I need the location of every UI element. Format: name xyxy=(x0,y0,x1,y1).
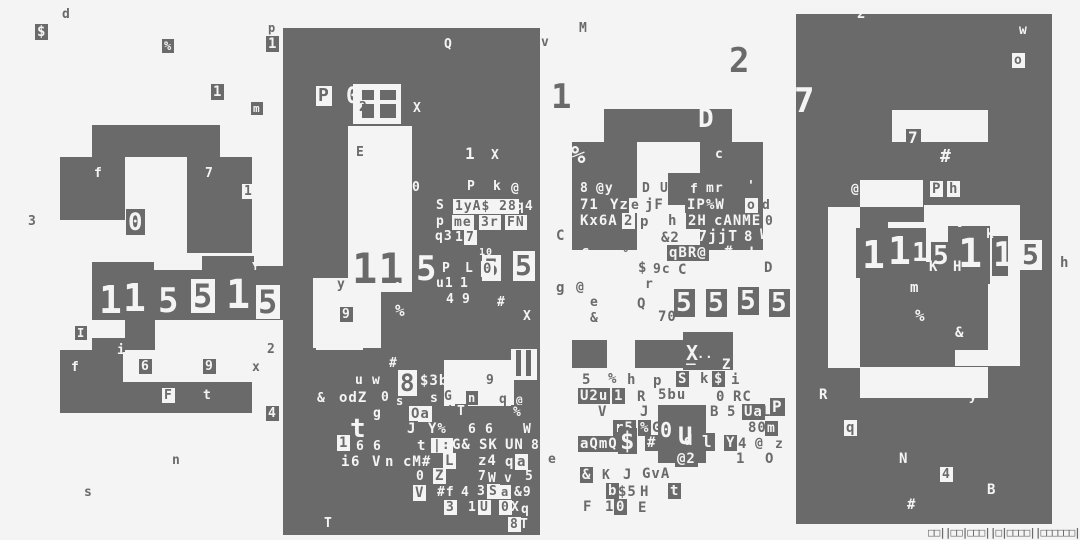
glyph: X xyxy=(491,149,500,162)
glyph: T xyxy=(455,404,468,419)
glyph: # xyxy=(389,357,398,370)
glyph: % xyxy=(620,242,629,255)
glyph: 8 xyxy=(398,370,417,396)
glyph: 7 xyxy=(478,470,487,483)
glyph: f xyxy=(94,167,103,180)
glyph: 2 xyxy=(267,343,276,356)
glyph: E xyxy=(356,146,365,159)
glyph: t xyxy=(668,483,681,499)
block xyxy=(572,340,607,368)
glyph: % xyxy=(395,303,406,319)
glyph: 0 xyxy=(381,391,390,404)
glyph: @ xyxy=(755,437,764,450)
glyph: a xyxy=(515,454,528,470)
glyph: G xyxy=(444,390,453,403)
glyph: L xyxy=(465,262,474,275)
glyph: 0 xyxy=(716,390,725,404)
glyph: f xyxy=(69,360,82,375)
glyph: wb xyxy=(468,406,486,419)
block xyxy=(187,157,252,253)
glyph: h xyxy=(947,181,960,197)
glyph: U xyxy=(495,406,504,419)
glyph: N xyxy=(899,452,908,466)
glyph: mr xyxy=(706,182,724,195)
glyph: E xyxy=(638,501,647,515)
glyph: K xyxy=(929,260,938,274)
glyph: C xyxy=(556,229,565,243)
glyph: J xyxy=(623,468,632,482)
glyph: 5 xyxy=(191,279,215,313)
glyph: q xyxy=(505,455,514,469)
glyph: w xyxy=(372,374,381,387)
glyph: e xyxy=(629,198,642,213)
glyph: 6 xyxy=(468,423,477,436)
white-patch xyxy=(828,350,860,368)
glyph: 2 xyxy=(359,101,368,114)
glyph: 0 xyxy=(660,420,673,440)
glyph: K xyxy=(602,469,611,482)
glyph: P xyxy=(316,86,332,106)
glyph: 1 xyxy=(226,275,251,315)
glyph: 0 xyxy=(126,209,145,235)
glyph: GvA xyxy=(642,467,670,481)
glyph: 1 xyxy=(123,279,147,317)
white-patch xyxy=(860,180,923,207)
glyph: v xyxy=(541,36,550,49)
glyph: C xyxy=(678,263,687,277)
glyph: e xyxy=(548,453,557,466)
glyph: # xyxy=(645,435,658,451)
glyph: # xyxy=(907,498,916,512)
glyph: 2 xyxy=(622,213,635,229)
glyph: 1 xyxy=(993,238,1014,272)
glyph: L xyxy=(443,453,456,469)
glyph: t xyxy=(203,389,212,402)
glyph: @ xyxy=(509,181,522,196)
glyph: 9c xyxy=(653,263,671,276)
glyph: R xyxy=(637,390,646,404)
glyph: q xyxy=(521,503,530,516)
glyph: n xyxy=(385,455,394,469)
glyph: 1 xyxy=(612,388,625,404)
glyph: 0 xyxy=(412,181,421,194)
glyph: 1 xyxy=(242,184,255,199)
glyph: Oa xyxy=(409,406,432,422)
block xyxy=(362,90,374,100)
glyph: 5 xyxy=(674,289,695,317)
glyph: %W xyxy=(706,198,725,212)
block xyxy=(526,350,531,376)
glyph: m xyxy=(251,102,263,115)
glyph: B xyxy=(987,483,996,497)
glyph: # xyxy=(497,296,506,309)
glyph: D xyxy=(698,106,715,132)
glyph: 3r xyxy=(479,215,501,230)
glyph: s xyxy=(396,395,404,407)
glyph: .. xyxy=(697,348,713,360)
glyph: P xyxy=(770,398,785,416)
glyph: g xyxy=(556,281,565,295)
glyph: U xyxy=(478,500,491,515)
glyph: f xyxy=(688,182,701,197)
glyph: s xyxy=(84,486,93,499)
block xyxy=(60,157,125,220)
glyph: Y% xyxy=(428,422,447,436)
glyph: g xyxy=(373,407,382,420)
glyph: 1yA$ 28 xyxy=(453,199,519,214)
glyph: q4 xyxy=(516,200,534,213)
glitch-canvas: d$%p11m3f710Y115515Iif692xFt4nsQvP02XE1X… xyxy=(0,0,1080,540)
glyph: RC xyxy=(733,390,752,404)
glyph: $ xyxy=(471,278,480,292)
glyph: q3 xyxy=(435,230,453,243)
glyph: c xyxy=(715,148,724,161)
glyph: 5 xyxy=(582,373,591,387)
glyph: Y xyxy=(724,435,737,451)
glyph: z4 xyxy=(476,453,499,469)
glyph: ' xyxy=(747,180,756,193)
glyph: U xyxy=(660,182,669,195)
glyph: V xyxy=(598,405,607,419)
glyph: @2 xyxy=(675,451,698,467)
glyph: 7jjT xyxy=(698,229,738,244)
glyph: 3 xyxy=(444,500,457,515)
glyph: FN xyxy=(505,215,527,230)
glyph: 7 xyxy=(955,210,969,232)
glyph: & xyxy=(317,392,326,405)
glyph: 1 xyxy=(862,236,886,274)
block xyxy=(516,350,521,376)
glyph: F xyxy=(162,388,175,403)
glyph: L xyxy=(749,246,758,260)
glyph: @y xyxy=(596,182,614,195)
glyph: 71 xyxy=(580,198,599,212)
glyph: 4 xyxy=(446,293,455,306)
glyph: S xyxy=(487,484,500,499)
glyph: 6 xyxy=(485,423,494,436)
glyph: % xyxy=(608,372,617,386)
glyph: 5bu xyxy=(658,388,686,402)
glyph: D xyxy=(642,182,651,195)
glyph: m xyxy=(910,281,919,295)
glyph: 8 xyxy=(508,517,521,532)
glyph: _ xyxy=(686,348,697,364)
glyph: @ xyxy=(851,183,860,196)
glyph: X xyxy=(511,501,520,514)
glyph: S xyxy=(436,199,445,212)
glyph: W xyxy=(523,423,532,436)
glyph: J xyxy=(640,405,649,419)
block xyxy=(125,317,155,350)
glyph: n xyxy=(172,454,181,467)
glyph: G& xyxy=(452,438,471,452)
glyph: # xyxy=(940,148,952,166)
glyph: 0 xyxy=(416,470,425,483)
block xyxy=(892,287,955,367)
glyph: 4 xyxy=(738,437,747,451)
glyph: Y xyxy=(252,261,260,272)
glyph: X xyxy=(413,102,422,115)
glyph: aQmQ xyxy=(578,436,620,452)
glyph: r xyxy=(645,278,654,291)
glyph: S xyxy=(676,371,689,387)
glyph: n xyxy=(466,391,478,405)
white-patch xyxy=(316,340,363,350)
glyph: T xyxy=(520,518,529,531)
glyph: 8 xyxy=(580,182,589,195)
glyph: cANME xyxy=(714,214,761,228)
glyph: % xyxy=(162,39,174,53)
glyph: I xyxy=(75,326,87,340)
glyph: me xyxy=(452,215,474,230)
glyph: D xyxy=(764,261,773,275)
glyph: B xyxy=(710,405,719,419)
glyph: k xyxy=(493,180,502,193)
glyph: 5 xyxy=(158,284,179,318)
block xyxy=(380,90,396,100)
glyph: V xyxy=(413,485,426,501)
glyph: 9 xyxy=(203,359,216,374)
glyph: 0 xyxy=(614,499,627,515)
glyph: 5 xyxy=(769,289,790,317)
glyph: 5 xyxy=(738,287,759,315)
glyph: v xyxy=(504,472,513,485)
glyph: H xyxy=(640,485,649,499)
glyph: Yz xyxy=(610,198,629,212)
glyph: m xyxy=(765,421,778,436)
glyph: 1 xyxy=(465,146,476,162)
glyph: 2 xyxy=(857,7,866,21)
glyph: X xyxy=(521,309,534,324)
glyph: |: xyxy=(431,438,453,453)
glyph: 7 xyxy=(906,129,921,147)
glyph: 6 xyxy=(349,454,362,470)
glyph: s xyxy=(428,391,441,406)
glyph: t xyxy=(417,439,426,453)
glyph: & xyxy=(580,467,593,483)
glyph: 1 xyxy=(99,281,123,319)
glyph: V xyxy=(370,454,383,470)
glyph: p xyxy=(436,215,445,228)
glyph: 4 xyxy=(266,406,279,421)
glyph: 5 xyxy=(706,289,727,317)
glyph: 5 xyxy=(727,405,736,419)
glyph: h xyxy=(668,214,677,228)
glyph: 7 xyxy=(205,167,214,180)
glyph: WZ xyxy=(760,228,779,242)
glyph: 2 xyxy=(729,44,750,78)
glyph: 9 xyxy=(340,307,353,322)
glyph: q xyxy=(844,420,857,436)
glyph: 5 xyxy=(256,285,280,319)
glyph: 5 xyxy=(1020,240,1042,270)
glyph: d xyxy=(762,199,771,212)
glyph: x xyxy=(252,361,261,374)
glyph: % xyxy=(571,143,586,167)
glyph: h xyxy=(1060,256,1069,270)
glyph: 3 xyxy=(531,394,539,405)
glyph: $ xyxy=(35,24,48,40)
glyph: P xyxy=(930,181,943,197)
glyph: H xyxy=(953,260,962,274)
glyph: 3 xyxy=(28,215,37,228)
glyph: 8 xyxy=(531,439,540,452)
glyph: B xyxy=(698,450,707,464)
glyph: y xyxy=(969,390,978,403)
glyph: 3 xyxy=(477,485,486,498)
glyph: u1 xyxy=(436,277,454,290)
glyph: d xyxy=(62,8,71,21)
glyph: i xyxy=(446,406,455,419)
glyph: # xyxy=(724,245,733,259)
glyph: Q xyxy=(444,38,453,51)
glyph: @ xyxy=(574,280,587,295)
glyph: Z xyxy=(722,358,731,372)
glyph: w xyxy=(1019,24,1028,37)
barcode-strip: □□||□□|□□□||□|□□□□||□□□□□□||□||□ xyxy=(928,526,1080,539)
glyph: odZ xyxy=(339,391,367,405)
glyph: 5 xyxy=(513,251,535,281)
glyph: &9 xyxy=(514,486,532,499)
glyph: 5 xyxy=(525,470,534,483)
glyph: p xyxy=(640,215,649,229)
glyph: 1 xyxy=(912,240,929,266)
glyph: Q xyxy=(637,297,646,311)
glyph: $3b xyxy=(420,374,448,388)
glyph: 6 xyxy=(139,359,152,374)
glyph: UN xyxy=(505,438,524,452)
glyph: 1 xyxy=(266,36,279,52)
glyph: Kx6A xyxy=(580,214,618,228)
glyph: k xyxy=(700,372,709,386)
glyph: P xyxy=(467,180,476,193)
glyph: $5 xyxy=(618,485,637,499)
glyph: R xyxy=(819,388,828,402)
glyph: 6 xyxy=(356,440,365,453)
glyph: 0 xyxy=(481,261,494,277)
glyph: p xyxy=(653,374,662,388)
glyph: 1 xyxy=(337,435,350,451)
block xyxy=(380,104,396,118)
glyph: h xyxy=(627,373,636,387)
glyph: IP xyxy=(685,197,708,213)
glyph: 1 xyxy=(211,84,224,100)
glyph: % xyxy=(395,281,404,295)
glyph: 7 xyxy=(794,84,815,118)
glyph: 9 xyxy=(460,292,473,307)
glyph: qBR@ xyxy=(667,245,709,261)
glyph: 6 xyxy=(373,440,382,453)
glyph: 1 xyxy=(736,452,745,466)
glyph: F xyxy=(583,500,592,514)
glyph: 9 xyxy=(486,374,495,387)
glyph: $ xyxy=(712,371,725,387)
glyph: SK xyxy=(477,437,500,453)
glyph: J xyxy=(405,421,418,437)
glyph: cM# xyxy=(403,455,431,469)
glyph: 4 xyxy=(940,467,953,482)
glyph: 1 xyxy=(466,500,479,515)
glyph: & xyxy=(955,326,964,340)
glyph: $ xyxy=(638,261,647,275)
block xyxy=(92,125,220,157)
glyph: 1 xyxy=(551,80,572,114)
glyph: O xyxy=(765,452,774,466)
glyph: % xyxy=(638,420,651,436)
glyph: i xyxy=(117,344,126,357)
glyph: jF xyxy=(645,198,664,212)
glyph: &2 xyxy=(661,231,680,245)
glyph: a xyxy=(499,485,511,499)
glyph: o xyxy=(745,198,758,213)
glyph: 4 xyxy=(461,486,470,499)
glyph: e xyxy=(588,295,601,310)
glyph: u xyxy=(355,374,364,387)
white-patch xyxy=(511,349,537,380)
glyph: V xyxy=(988,337,1002,359)
glyph: P xyxy=(440,261,453,276)
glyph: 0 xyxy=(499,500,512,515)
glyph: 7 xyxy=(464,230,477,245)
glyph: d xyxy=(684,434,693,448)
glyph: % xyxy=(915,308,926,324)
glyph: 8 xyxy=(744,230,753,244)
glyph: $ xyxy=(618,428,637,454)
glyph: U2u xyxy=(578,388,610,404)
glyph: M xyxy=(579,22,588,35)
glyph: #f xyxy=(437,486,455,499)
glyph: T xyxy=(324,517,333,530)
glyph: o xyxy=(1012,53,1025,68)
glyph: & xyxy=(588,311,601,326)
glyph: Z xyxy=(433,468,446,484)
glyph: 1 xyxy=(458,276,471,291)
glyph: i xyxy=(731,373,740,387)
glyph: y xyxy=(337,278,346,291)
glyph: p xyxy=(268,22,276,34)
glyph: c xyxy=(581,245,590,259)
glyph: z xyxy=(775,438,784,451)
glyph: 1 xyxy=(888,232,912,270)
glyph: % xyxy=(511,405,524,420)
